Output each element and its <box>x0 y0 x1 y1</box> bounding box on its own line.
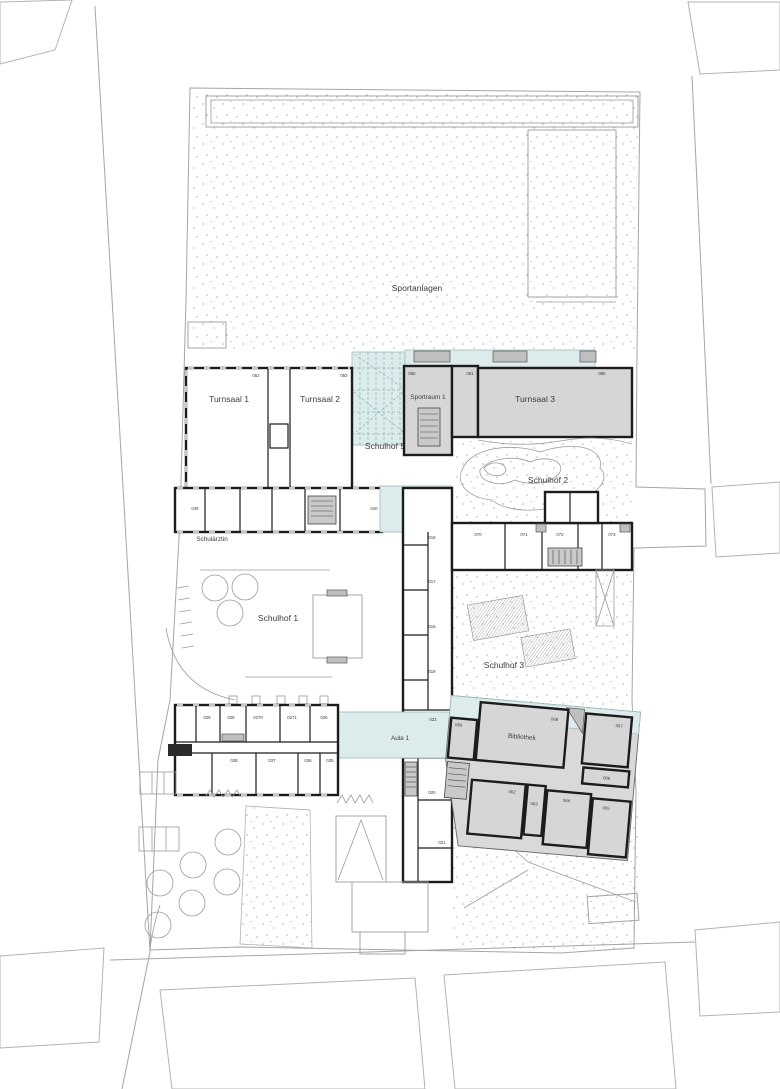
room-026: 026 <box>320 715 328 720</box>
landscape-southwest <box>139 772 312 948</box>
parcel-bottom-center-2 <box>444 962 676 1089</box>
site-plan-drawing: Sportanlagen Schulhof 2 Schulhof 3 Schul… <box>0 0 780 1089</box>
sportanlagen-field: Sportanlagen <box>188 90 638 352</box>
wardrobe-block <box>222 734 244 741</box>
road-edge-west <box>95 6 150 952</box>
tree-2 <box>232 574 258 600</box>
tree-6 <box>147 870 173 896</box>
library-cluster: Bibliothek 069 068 067 066 062 063 064 0… <box>438 696 640 861</box>
schulaerztin-label: Schulärztin <box>196 536 228 543</box>
room-073: 073 <box>608 532 616 537</box>
road-edge-east <box>692 76 711 484</box>
south-wing-extras <box>205 790 428 954</box>
ne-wing-stub <box>545 492 598 523</box>
parcel-bottom-center-1 <box>160 978 425 1089</box>
room-063-block <box>523 785 545 836</box>
central-corridor-wing: 018 017 016 019 020 021 <box>380 486 452 882</box>
room-080: 080 <box>598 371 606 376</box>
planter-grid-2 <box>140 772 176 794</box>
room-067: 067 <box>615 723 623 729</box>
schulhof5-label: Schulhof 5 <box>365 441 405 451</box>
parcel-top-left <box>0 0 72 64</box>
room-070: 070 <box>474 532 482 537</box>
turnsaal2-label: Turnsaal 2 <box>300 394 340 404</box>
room-069-block <box>448 718 477 760</box>
room-018: 018 <box>428 535 436 540</box>
room-067-block <box>582 713 632 767</box>
tree-8 <box>179 890 205 916</box>
ne-wing-stair <box>548 548 582 566</box>
sportanlagen-label: Sportanlagen <box>392 283 443 293</box>
turnsaal1-label: Turnsaal 1 <box>209 394 249 404</box>
room-016: 016 <box>428 624 436 629</box>
room-020: 020 <box>428 790 436 795</box>
curved-path-edge <box>166 628 235 700</box>
south-stub <box>352 882 428 932</box>
court-rect <box>313 595 362 658</box>
tree-7 <box>214 869 240 895</box>
schulhof1-label: Schulhof 1 <box>258 613 298 623</box>
room-040: 040 <box>370 506 378 511</box>
room-081-block <box>452 366 478 437</box>
tree-4 <box>215 829 241 855</box>
west-wing-block <box>175 488 382 532</box>
duct-block-1 <box>536 524 546 532</box>
skylight-3 <box>580 351 596 362</box>
room-035: 035 <box>326 758 334 763</box>
tree-1 <box>202 575 228 601</box>
duct-block-2 <box>620 524 630 532</box>
schulhof3-courtyard: Schulhof 3 <box>452 572 632 708</box>
tree-3 <box>217 600 243 626</box>
south-stair <box>405 762 417 796</box>
ramp-enclosure <box>336 816 386 882</box>
entrance-canopy <box>168 744 192 756</box>
room-081: 081 <box>466 371 474 376</box>
room-072: 072 <box>556 532 564 537</box>
ramp-triangle <box>338 820 383 880</box>
goal-north <box>327 590 347 596</box>
turnsaal-building: Turnsaal 1 Turnsaal 2 052 053 <box>186 368 352 490</box>
bike-racks-center <box>337 795 373 803</box>
skylight-1 <box>414 351 450 362</box>
planter-grid-1 <box>139 827 179 851</box>
room-053: 053 <box>340 373 348 378</box>
schulhof3-label: Schulhof 3 <box>484 660 524 670</box>
room-065: 065 <box>602 805 610 811</box>
room-028: 028 <box>227 715 235 720</box>
room-062-block <box>467 780 526 839</box>
parcel-top-right <box>688 2 780 74</box>
room-037: 037 <box>268 758 276 763</box>
site-plan-page: Sportanlagen Schulhof 2 Schulhof 3 Schul… <box>0 0 780 1089</box>
room-038: 038 <box>230 758 238 763</box>
schulhof5-canopy: Schulhof 5 <box>352 352 405 451</box>
schulaerztin-wing: Schulärztin 049 040 <box>175 488 382 543</box>
room-021: 021 <box>438 840 446 845</box>
room-0270: 0270 <box>253 715 263 720</box>
schulhof2-label: Schulhof 2 <box>528 475 568 485</box>
sportanlagen-ground <box>192 90 638 352</box>
turnsaal3-hall <box>478 368 632 437</box>
aula1-label: Aula 1 <box>391 735 410 742</box>
room-082: 082 <box>408 371 416 376</box>
parcel-bottom-right <box>695 922 780 1016</box>
room-022: 022 <box>429 717 437 722</box>
road-edge-southwest <box>122 952 150 1089</box>
cluster-stair <box>444 762 469 800</box>
planting-bed <box>240 806 312 948</box>
tree-5 <box>180 852 206 878</box>
room-036: 036 <box>304 758 312 763</box>
room-068: 068 <box>551 716 559 722</box>
west-wing-stair <box>308 496 336 524</box>
parcel-bottom-left <box>0 948 104 1048</box>
room-0271: 0271 <box>287 715 297 720</box>
room-064: 064 <box>563 798 571 804</box>
room-071: 071 <box>520 532 528 537</box>
sportraum-stair <box>418 408 440 446</box>
room-063: 063 <box>530 801 538 807</box>
turnsaal3-label: Turnsaal 3 <box>515 394 555 404</box>
parking-ticks <box>177 586 194 648</box>
parcel-right <box>712 482 780 557</box>
room-017: 017 <box>428 579 436 584</box>
room-019: 019 <box>428 669 436 674</box>
southwest-classroom-wing: 029 028 0270 0271 026 038 037 036 035 <box>168 696 338 795</box>
room-062: 062 <box>508 789 516 795</box>
room-052: 052 <box>252 373 260 378</box>
skylight-2 <box>493 351 527 362</box>
bench-row <box>229 696 328 704</box>
goal-south <box>327 657 347 663</box>
room-066: 066 <box>603 775 611 781</box>
aula: Aula 1 022 <box>335 712 452 758</box>
sportraum1-label: Sportraum 1 <box>410 394 446 401</box>
turnsaal-hall-block <box>186 368 352 490</box>
room-049: 049 <box>191 506 199 511</box>
room-029: 029 <box>203 715 211 720</box>
room-069: 069 <box>455 722 463 728</box>
